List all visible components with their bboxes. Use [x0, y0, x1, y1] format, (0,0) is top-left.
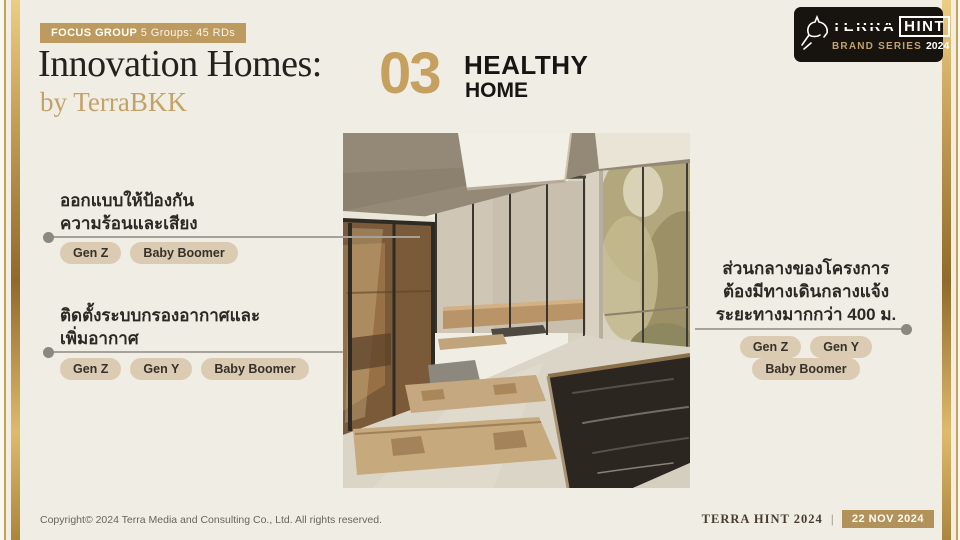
healthy-home-photo	[343, 133, 690, 488]
tag-gen-y: Gen Y	[810, 336, 872, 358]
annotation-heat-noise-line2: ความร้อนและเสียง	[60, 213, 198, 236]
page-title: Innovation Homes:	[38, 42, 322, 86]
connector-line-3	[695, 328, 907, 330]
terra-hint-logo: TERRA HINT BRAND SERIES 2024	[794, 7, 943, 62]
tag-baby-boomer: Baby Boomer	[201, 358, 308, 380]
section-title-line2: HOME	[465, 79, 528, 103]
slide: FOCUS GROUP 5 Groups: 45 RDs Innovation …	[0, 0, 960, 540]
tag-gen-z: Gen Z	[740, 336, 801, 358]
tag-gen-z: Gen Z	[60, 242, 121, 264]
annotation-air-filter-line1: ติดตั้งระบบกรองอากาศและ	[60, 305, 260, 328]
logo-text: TERRA HINT BRAND SERIES 2024	[832, 16, 950, 52]
right-gold-line	[956, 0, 958, 540]
annotation-outdoor-walkway-line3: ระยะทางมากกว่า 400 ม.	[697, 304, 915, 327]
section-number: 03	[379, 45, 440, 103]
focus-group-badge-bold: FOCUS GROUP	[51, 27, 137, 39]
logo-brand-series: BRAND SERIES	[832, 41, 922, 52]
annotation-heat-noise-tags: Gen Z Baby Boomer	[60, 242, 238, 264]
annotation-outdoor-walkway-line2: ต้องมีทางเดินกลางแจ้ง	[697, 281, 915, 304]
unicorn-icon	[799, 15, 831, 53]
tag-baby-boomer: Baby Boomer	[752, 358, 859, 380]
right-gold-bar	[942, 0, 951, 540]
logo-hint: HINT	[899, 16, 950, 37]
logo-terra: TERRA	[832, 18, 896, 35]
connector-line-2	[48, 351, 343, 353]
annotation-outdoor-walkway-tags-row1: Gen Z Gen Y	[697, 336, 915, 358]
copyright-text: Copyright© 2024 Terra Media and Consulti…	[40, 514, 382, 526]
annotation-air-filter: ติดตั้งระบบกรองอากาศและ เพิ่มอากาศ	[60, 305, 260, 351]
tag-gen-y: Gen Y	[130, 358, 192, 380]
connector-dot-2	[43, 347, 54, 358]
annotation-air-filter-line2: เพิ่มอากาศ	[60, 328, 260, 351]
date-badge: 22 NOV 2024	[842, 510, 934, 528]
annotation-heat-noise-line1: ออกแบบให้ป้องกัน	[60, 190, 198, 213]
tag-baby-boomer: Baby Boomer	[130, 242, 237, 264]
annotation-outdoor-walkway-tags-row2: Baby Boomer	[697, 358, 915, 380]
annotation-outdoor-walkway: ส่วนกลางของโครงการ ต้องมีทางเดินกลางแจ้ง…	[697, 258, 915, 327]
meditation-room-illustration	[343, 133, 690, 488]
left-gold-bar	[11, 0, 20, 540]
footer-brand: TERRA HINT 2024	[702, 512, 823, 527]
annotation-outdoor-walkway-line1: ส่วนกลางของโครงการ	[697, 258, 915, 281]
section-title-line1: HEALTHY	[464, 50, 588, 81]
tag-gen-z: Gen Z	[60, 358, 121, 380]
logo-year: 2024	[926, 40, 949, 52]
footer-divider: |	[831, 512, 834, 526]
annotation-heat-noise: ออกแบบให้ป้องกัน ความร้อนและเสียง	[60, 190, 198, 236]
focus-group-badge: FOCUS GROUP 5 Groups: 45 RDs	[40, 23, 246, 43]
focus-group-badge-rest: 5 Groups: 45 RDs	[141, 27, 235, 39]
footer-right: TERRA HINT 2024 | 22 NOV 2024	[702, 510, 934, 528]
page-subtitle: by TerraBKK	[40, 87, 187, 118]
connector-line-1	[48, 236, 420, 238]
left-gold-line	[4, 0, 6, 540]
connector-dot-1	[43, 232, 54, 243]
annotation-air-filter-tags: Gen Z Gen Y Baby Boomer	[60, 358, 309, 380]
